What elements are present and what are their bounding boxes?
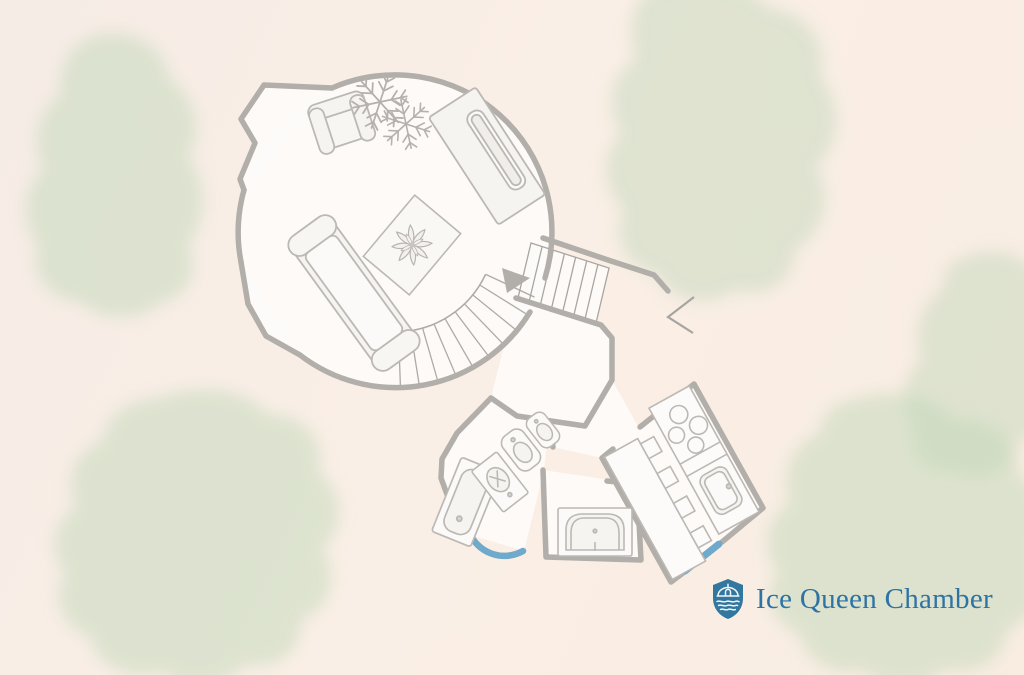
- watercolor-blob-bottom-right: [768, 394, 1024, 675]
- watercolor-blob-top-center: [606, 0, 836, 301]
- brand-logo-text: Ice Queen Chamber: [756, 583, 993, 616]
- floor-plan-illustration: [0, 0, 1024, 675]
- watercolor-blob-bottom-left: [55, 390, 339, 675]
- watercolor-blob-top-left: [26, 33, 202, 317]
- entry-door-swing-icon: [668, 297, 694, 333]
- bathtub: [558, 508, 632, 556]
- brand-logo: Ice Queen Chamber: [710, 577, 993, 621]
- shield-house-crest-icon: [710, 578, 746, 620]
